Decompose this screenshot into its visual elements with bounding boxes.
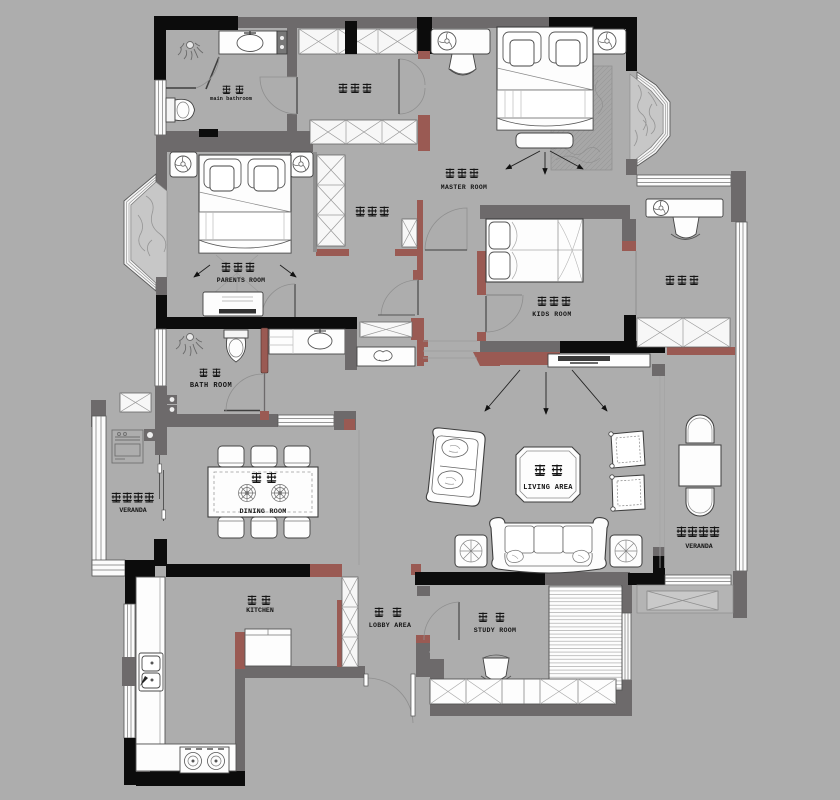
svg-text:BATH ROOM: BATH ROOM (190, 382, 232, 390)
svg-text:PARENTS ROOM: PARENTS ROOM (217, 277, 265, 284)
svg-text:DINING ROOM: DINING ROOM (239, 508, 286, 516)
svg-text:VERANDA: VERANDA (119, 507, 146, 514)
svg-text:main bathroom: main bathroom (210, 96, 253, 102)
svg-text:MASTER ROOM: MASTER ROOM (441, 184, 488, 191)
svg-text:LOBBY AREA: LOBBY AREA (369, 622, 412, 629)
svg-text:STUDY ROOM: STUDY ROOM (474, 627, 517, 634)
svg-text:KIDS ROOM: KIDS ROOM (532, 311, 572, 318)
svg-text:VERANDA: VERANDA (685, 543, 712, 550)
svg-text:LIVING AREA: LIVING AREA (523, 484, 573, 492)
svg-text:KITCHEN: KITCHEN (246, 607, 274, 614)
